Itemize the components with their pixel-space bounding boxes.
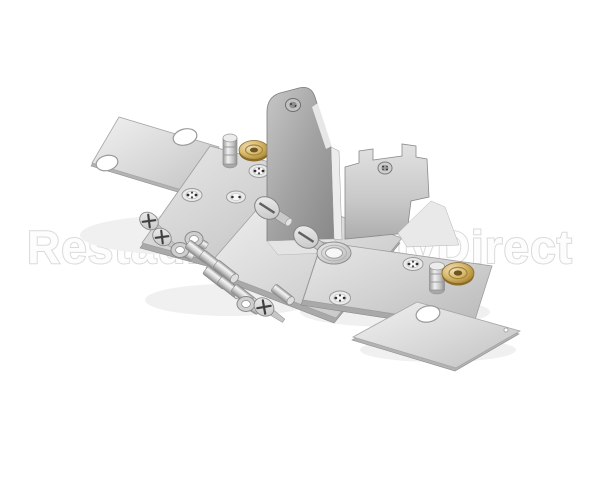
bracket-lug-hole bbox=[286, 99, 301, 112]
countersunk-hole bbox=[403, 258, 423, 271]
brass-bushing-washer bbox=[442, 263, 474, 286]
countersunk-hole bbox=[227, 191, 246, 203]
bracket-screw-hole bbox=[378, 162, 392, 174]
mounting-stud-pin bbox=[223, 134, 237, 168]
brass-bushing-washer bbox=[239, 141, 269, 162]
pin-hole bbox=[504, 328, 508, 332]
countersunk-hole bbox=[182, 189, 202, 202]
upright-bracket-right-wall bbox=[345, 144, 459, 247]
flat-ring-washer bbox=[317, 242, 351, 264]
countersunk-hole bbox=[330, 291, 351, 305]
mounting-stud-pin bbox=[430, 262, 445, 294]
product-photo-hardware-kit: RestaurantSupplyDirect bbox=[0, 0, 600, 480]
countersunk-hole bbox=[249, 165, 269, 178]
